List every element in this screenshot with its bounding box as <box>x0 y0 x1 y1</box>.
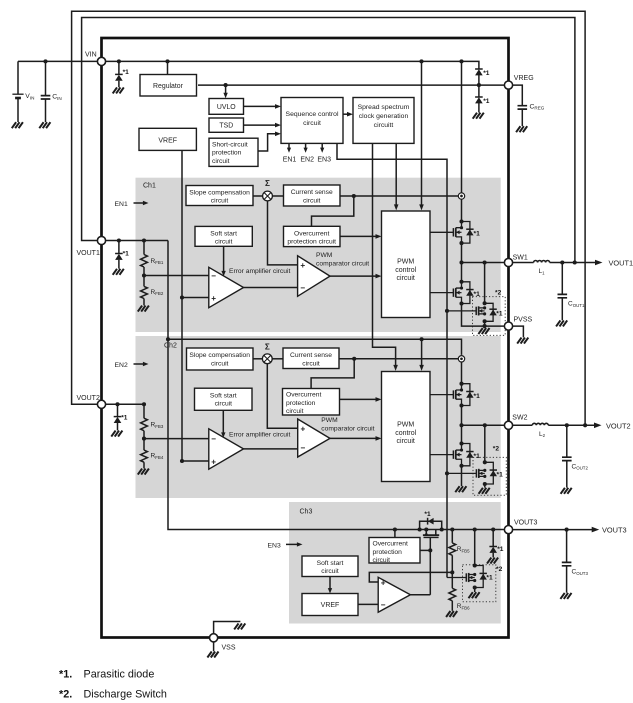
svg-text:Soft start: Soft start <box>210 230 237 237</box>
svg-text:EN3: EN3 <box>268 542 281 549</box>
svg-text:+: + <box>381 579 386 588</box>
svg-text:Discharge Switch: Discharge Switch <box>84 688 167 700</box>
svg-text:VOUT2: VOUT2 <box>77 395 100 402</box>
svg-text:VOUT3: VOUT3 <box>514 519 537 526</box>
svg-text:Ch3: Ch3 <box>300 508 313 515</box>
svg-text:*2.: *2. <box>59 688 72 700</box>
svg-text:PWM: PWM <box>397 422 414 429</box>
svg-text:*1: *1 <box>496 311 503 318</box>
svg-text:control: control <box>395 430 416 437</box>
svg-text:TSD: TSD <box>219 123 233 130</box>
svg-text:Overcurrent: Overcurrent <box>294 230 329 237</box>
svg-text:circuit: circuit <box>321 568 339 575</box>
svg-text:Ch2: Ch2 <box>164 342 177 349</box>
svg-text:UVLO: UVLO <box>217 104 236 111</box>
svg-text:Short-circuit: Short-circuit <box>212 141 248 148</box>
svg-text:*1: *1 <box>123 69 130 76</box>
svg-text:SW2: SW2 <box>512 415 527 422</box>
svg-text:comparator circuit: comparator circuit <box>321 426 374 433</box>
svg-text:circuit: circuit <box>373 557 391 564</box>
svg-text:VSS: VSS <box>222 644 236 651</box>
svg-text:*1: *1 <box>483 98 490 105</box>
svg-text:EN1: EN1 <box>115 201 128 208</box>
svg-text:PWM: PWM <box>397 259 414 266</box>
svg-text:Slope compensation: Slope compensation <box>189 352 250 359</box>
svg-text:protection: protection <box>373 549 403 556</box>
svg-text:VREF: VREF <box>321 602 340 609</box>
svg-text:Spread spectrum: Spread spectrum <box>358 104 410 111</box>
svg-text:Current sense: Current sense <box>291 189 333 196</box>
svg-text:circuit: circuit <box>303 197 321 204</box>
svg-text:*2: *2 <box>495 289 502 296</box>
svg-text:circuit: circuit <box>397 438 415 445</box>
svg-text:VOUT2: VOUT2 <box>606 421 631 430</box>
svg-text:circuit: circuit <box>212 158 230 165</box>
svg-text:protection: protection <box>212 150 242 157</box>
svg-text:circuit: circuit <box>215 401 233 408</box>
svg-text:*1: *1 <box>121 414 128 421</box>
svg-text:Soft start: Soft start <box>210 392 237 399</box>
svg-text:+: + <box>301 424 306 433</box>
svg-text:*1: *1 <box>474 453 481 460</box>
svg-text:circuit: circuit <box>215 239 233 246</box>
svg-text:−: − <box>211 271 216 280</box>
svg-text:circuit: circuit <box>303 120 321 127</box>
svg-text:circuit: circuit <box>211 360 229 367</box>
svg-text:VOUT1: VOUT1 <box>609 259 633 268</box>
svg-text:PVSS: PVSS <box>514 316 533 323</box>
svg-text:VREF: VREF <box>158 137 177 144</box>
svg-text:VIN: VIN <box>85 51 97 58</box>
svg-text:*1.: *1. <box>59 669 72 681</box>
svg-text:Current sense: Current sense <box>290 352 332 359</box>
svg-text:circuit: circuit <box>286 408 304 415</box>
svg-text:circuitt: circuitt <box>374 122 394 129</box>
svg-text:VOUT3: VOUT3 <box>602 526 627 535</box>
svg-text:Error amplifier circuit: Error amplifier circuit <box>229 268 290 275</box>
svg-text:−: − <box>301 444 306 453</box>
svg-text:*1: *1 <box>474 231 481 238</box>
svg-text:−: − <box>211 435 216 444</box>
svg-text:comparator circuit: comparator circuit <box>316 260 369 267</box>
svg-text:Slope compensation: Slope compensation <box>189 189 250 196</box>
svg-text:*1: *1 <box>486 575 493 582</box>
svg-text:SW1: SW1 <box>513 255 528 262</box>
svg-text:EN1: EN1 <box>283 157 297 164</box>
svg-text:EN2: EN2 <box>115 362 128 369</box>
svg-text:*1: *1 <box>424 511 431 518</box>
svg-text:Σ: Σ <box>265 179 270 188</box>
svg-text:+: + <box>211 294 216 303</box>
svg-text:EN2: EN2 <box>300 157 314 164</box>
svg-text:Overcurrent: Overcurrent <box>373 541 408 548</box>
svg-text:Overcurrent: Overcurrent <box>286 392 321 399</box>
svg-text:*1: *1 <box>497 471 504 478</box>
svg-text:*2: *2 <box>496 566 503 573</box>
svg-text:Parasitic diode: Parasitic diode <box>84 669 155 681</box>
svg-text:−: − <box>300 284 305 293</box>
svg-text:PWM: PWM <box>321 417 338 424</box>
svg-text:*1: *1 <box>474 291 481 298</box>
svg-text:protection circuit: protection circuit <box>287 239 336 246</box>
svg-text:−: − <box>381 600 386 609</box>
svg-text:*1: *1 <box>474 393 481 400</box>
svg-text:Ch1: Ch1 <box>143 183 156 190</box>
svg-text:Σ: Σ <box>265 342 270 351</box>
svg-text:*1: *1 <box>497 546 504 553</box>
svg-text:clock generation: clock generation <box>359 113 409 120</box>
svg-text:VREG: VREG <box>514 75 534 82</box>
svg-text:EN3: EN3 <box>317 157 331 164</box>
svg-text:*2: *2 <box>493 446 500 453</box>
svg-text:Sequence control: Sequence control <box>286 111 339 118</box>
svg-text:Regulator: Regulator <box>153 83 184 90</box>
svg-text:+: + <box>300 261 305 270</box>
svg-text:Soft start: Soft start <box>317 560 344 567</box>
svg-text:circuit: circuit <box>211 198 229 205</box>
svg-text:Error amplifier circuit: Error amplifier circuit <box>229 432 290 439</box>
svg-text:VOUT1: VOUT1 <box>77 250 100 257</box>
svg-text:*1: *1 <box>123 251 130 258</box>
svg-text:PWM: PWM <box>316 252 333 259</box>
svg-text:*1: *1 <box>483 70 490 77</box>
svg-text:control: control <box>395 267 416 274</box>
svg-text:circuit: circuit <box>302 360 320 367</box>
svg-text:protection: protection <box>286 400 316 407</box>
svg-text:circuit: circuit <box>397 275 415 282</box>
svg-text:+: + <box>211 458 216 467</box>
